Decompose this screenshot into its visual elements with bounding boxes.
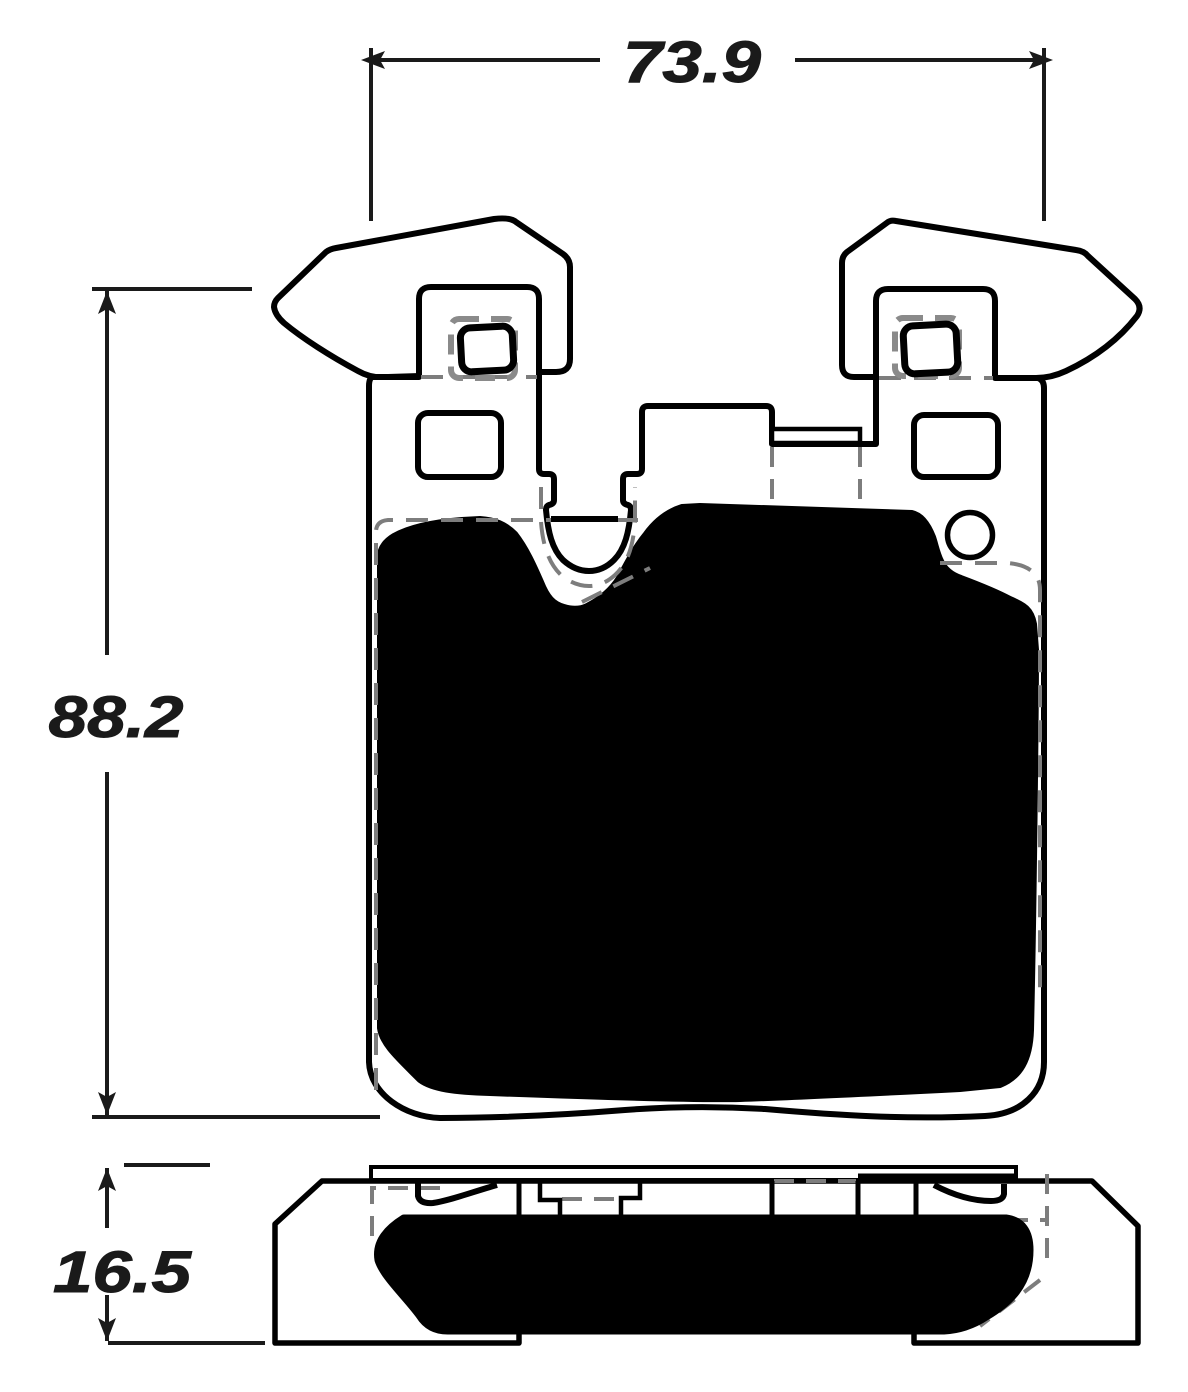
svg-text:73.9: 73.9	[623, 30, 761, 95]
svg-text:16.5: 16.5	[53, 1240, 192, 1305]
svg-text:88.2: 88.2	[49, 685, 184, 750]
